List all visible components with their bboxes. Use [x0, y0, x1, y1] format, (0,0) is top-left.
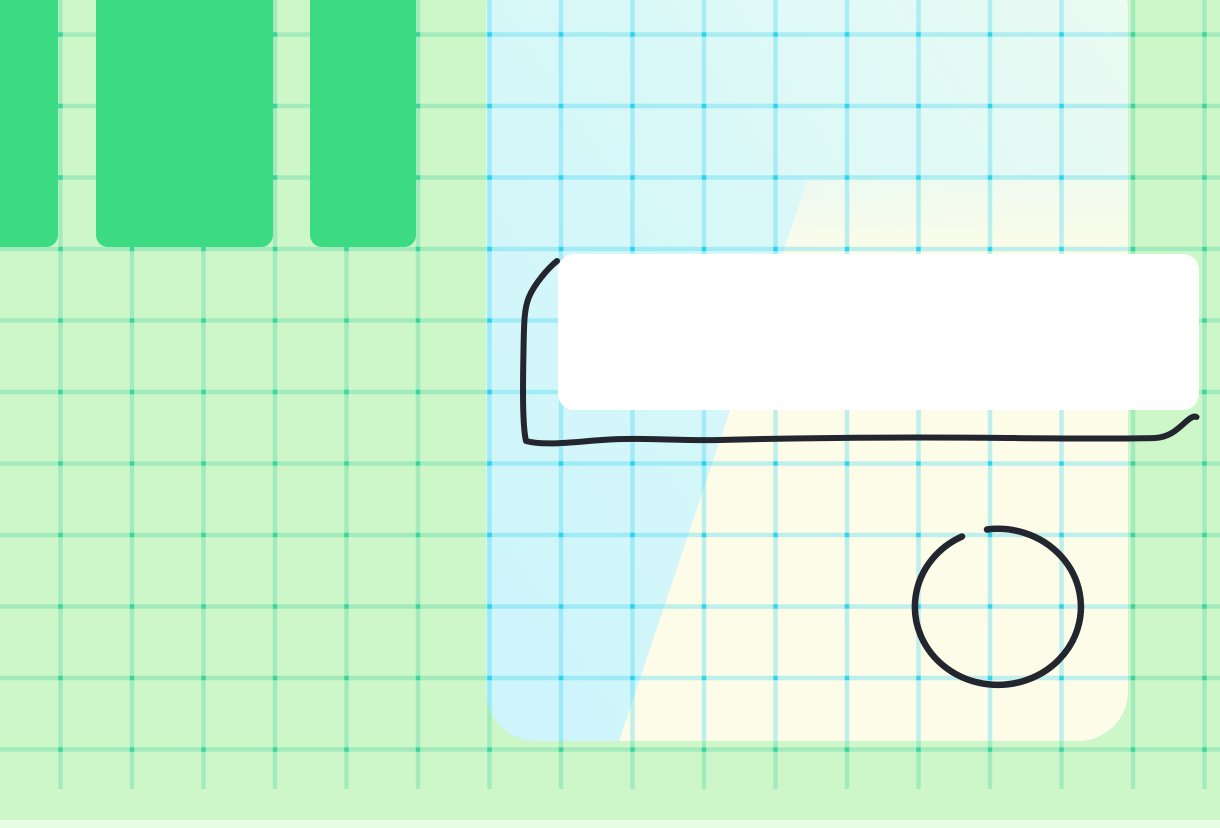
green-card-3[interactable] [310, 0, 416, 247]
white-card[interactable] [558, 254, 1199, 410]
whiteboard-canvas[interactable] [0, 0, 1220, 828]
green-card-1[interactable] [0, 0, 58, 247]
green-card-2[interactable] [96, 0, 273, 247]
bottom-edge-strip [0, 820, 1220, 828]
canvas-scene [0, 0, 1220, 828]
